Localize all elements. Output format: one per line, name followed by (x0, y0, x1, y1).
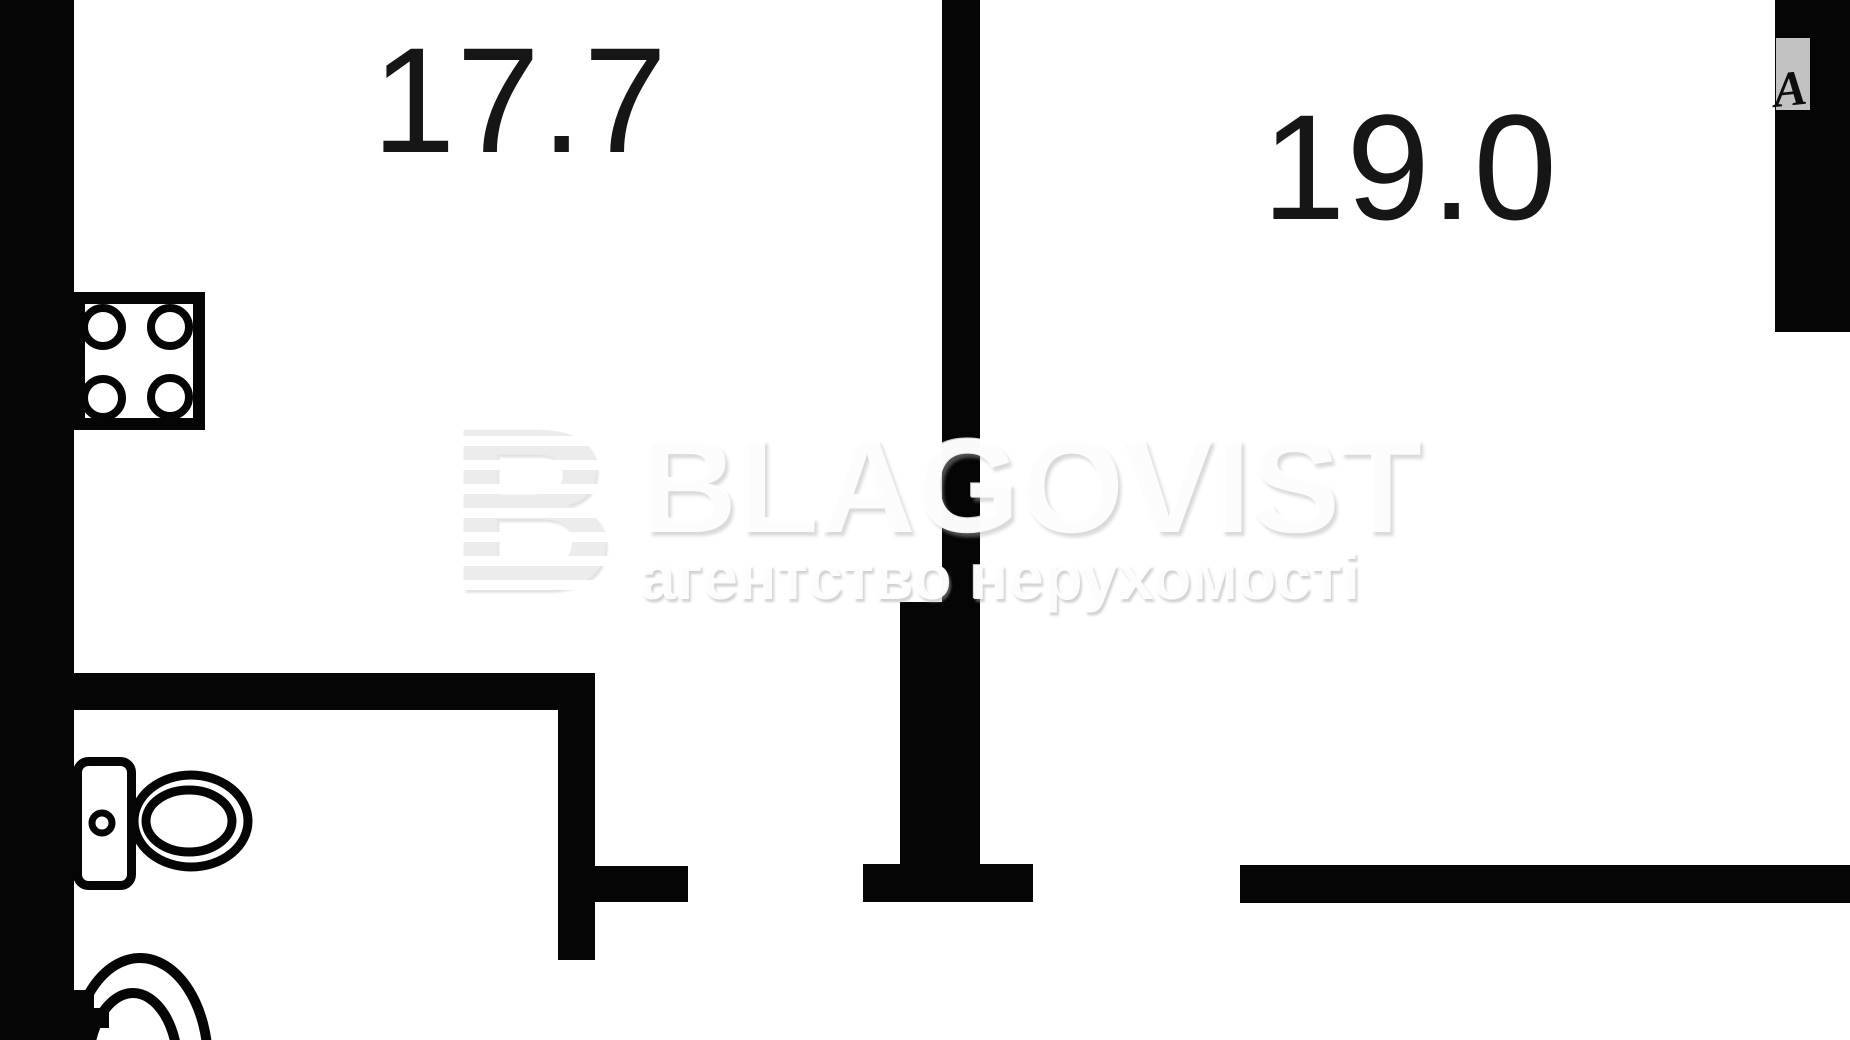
wall-left (0, 0, 74, 1040)
corner-badge: A (1776, 38, 1810, 110)
wall-bathroom-right (558, 673, 595, 960)
wall-center-top (942, 0, 980, 602)
room-area-label-17-7: 17.7 (372, 25, 668, 175)
wall-bathroom-stub (595, 866, 688, 902)
corner-badge-letter-a: A (1771, 63, 1809, 114)
room-area-label-19-0: 19.0 (1262, 92, 1558, 242)
watermark-logo-stripes (438, 398, 632, 637)
wall-bathroom-top (74, 673, 595, 710)
floor-plan: 17.7 19.0 B BLAGOVIST агентство нерухомо… (0, 0, 1850, 1040)
watermark-logo-b-icon: B (448, 408, 618, 623)
sink-icon (45, 948, 235, 1040)
wall-bottom-right (1240, 865, 1850, 903)
watermark-brand-text: BLAGOVIST (640, 420, 1422, 554)
watermark-logo-letter: B (448, 380, 616, 640)
stove-icon (73, 292, 205, 430)
wall-center-column (900, 602, 980, 864)
wall-center-threshold (863, 864, 1033, 902)
toilet-icon (73, 753, 259, 895)
watermark-subtitle-text: агентство нерухомості (640, 545, 1360, 609)
